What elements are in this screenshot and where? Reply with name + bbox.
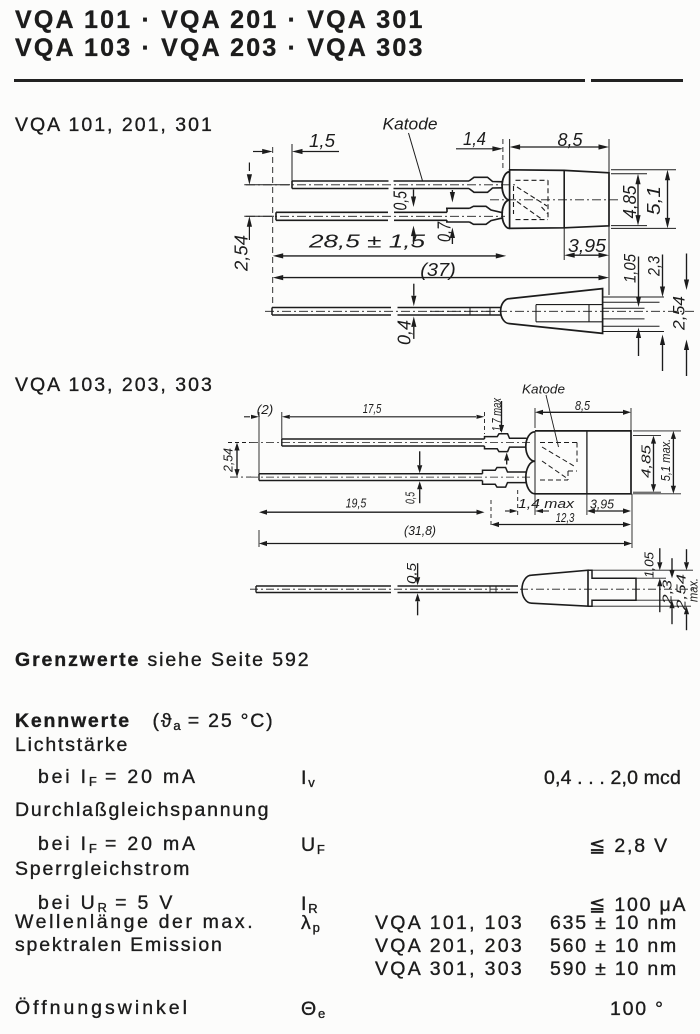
svg-text:1,05: 1,05 [621,254,640,283]
svg-text:1,4 max: 1,4 max [518,497,575,511]
svg-text:17,5: 17,5 [363,402,382,416]
svg-text:0,4: 0,4 [395,320,415,345]
svg-text:1,4: 1,4 [463,129,486,149]
svg-text:4,85: 4,85 [620,185,640,219]
svg-text:12,3: 12,3 [556,511,575,525]
svg-text:5,1: 5,1 [644,186,664,215]
svg-text:5,1 max.: 5,1 max. [659,439,673,482]
svg-text:0,5: 0,5 [391,190,411,210]
svg-text:2,54: 2,54 [222,448,236,473]
svg-text:8,5: 8,5 [575,399,590,413]
svg-text:Katode: Katode [383,115,438,134]
svg-text:Katode: Katode [522,382,565,397]
svg-text:0,5: 0,5 [404,492,418,504]
svg-text:max.: max. [687,578,700,602]
svg-text:1,5: 1,5 [309,131,336,151]
svg-text:4,85: 4,85 [640,445,654,478]
svg-text:2,3: 2,3 [645,256,664,277]
svg-text:1,05: 1,05 [643,552,657,578]
svg-text:28,5 ± 1,5: 28,5 ± 1,5 [308,232,427,252]
svg-text:(31,8): (31,8) [404,524,436,538]
svg-text:19,5: 19,5 [346,497,367,511]
svg-text:2,54: 2,54 [232,235,252,272]
svg-text:2,54: 2,54 [670,296,689,331]
